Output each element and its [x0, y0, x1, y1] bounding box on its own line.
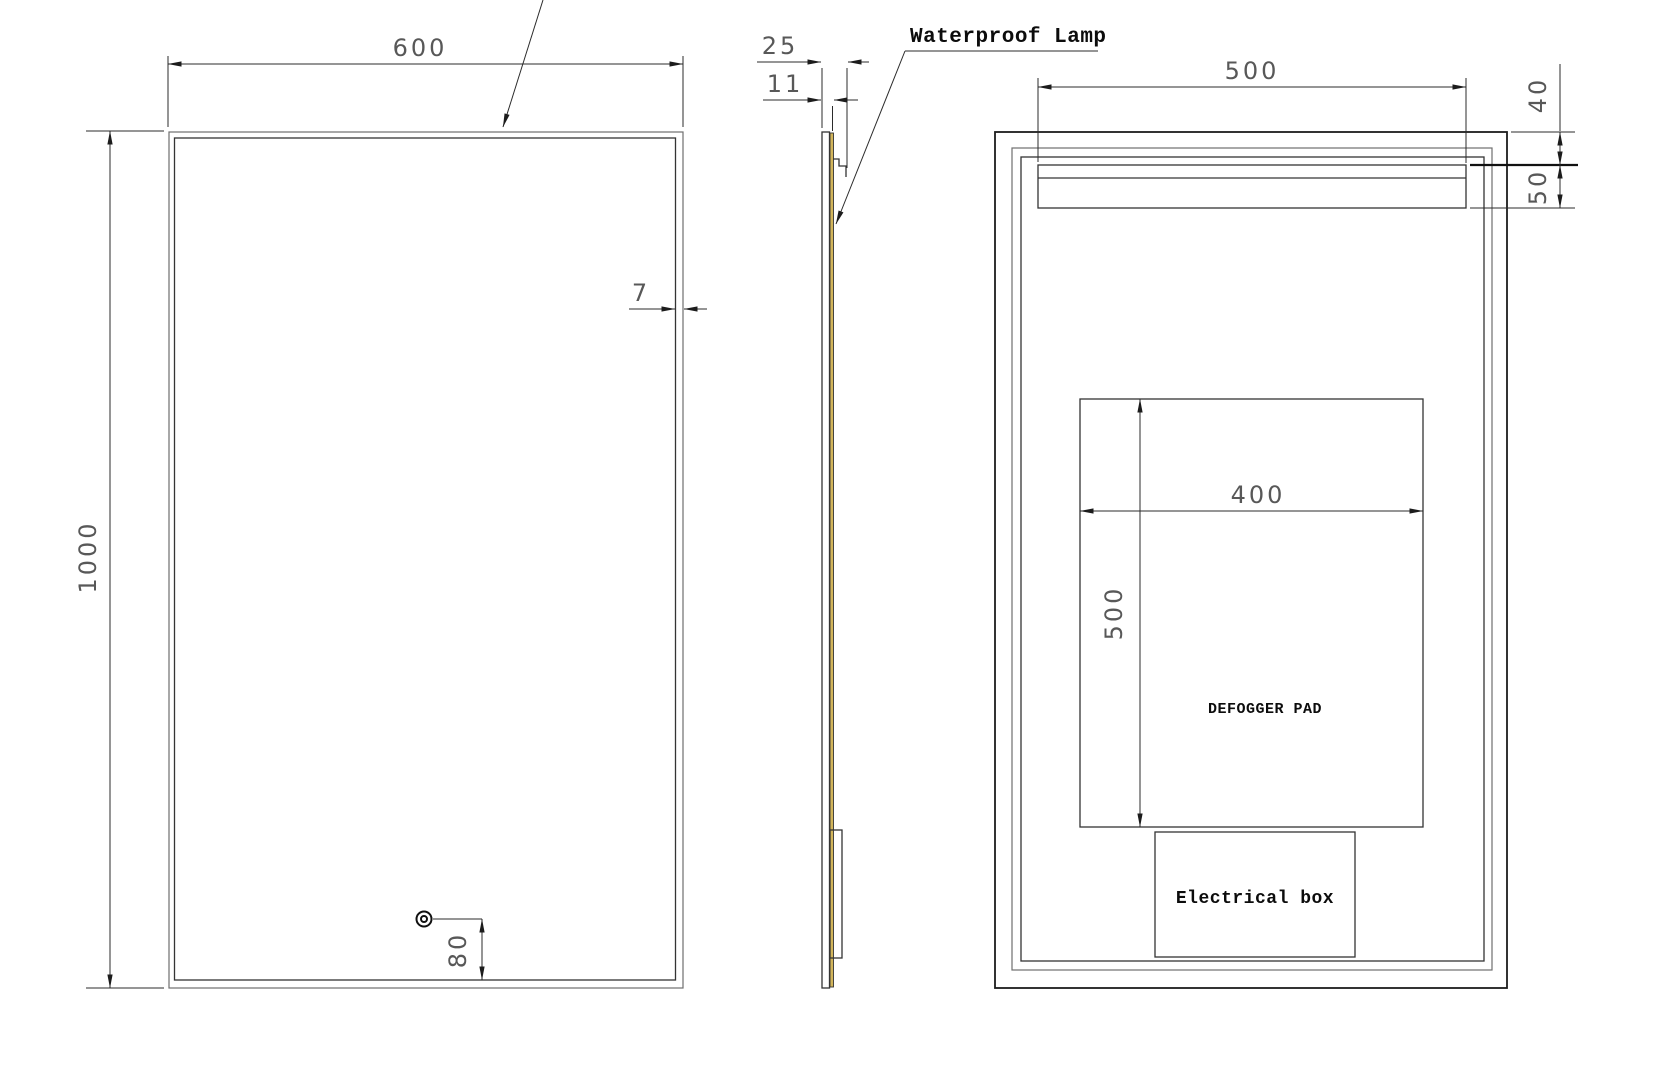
waterproof-lamp-label: Waterproof Lamp	[910, 26, 1107, 49]
front-view: 600 1000 7 80	[74, 0, 707, 988]
technical-drawing-canvas: 600 1000 7 80 25 11	[0, 0, 1664, 1080]
back-inner-frame	[1021, 157, 1484, 961]
back-view: 500 40 50 400 500 DEFOGGER PAD Electrica…	[995, 57, 1578, 988]
sensor-dim-text: 80	[444, 932, 472, 969]
defogger-width-dim-text: 400	[1231, 481, 1286, 509]
defogger-height-dim-text: 500	[1100, 586, 1128, 641]
defogger-pad	[1080, 399, 1423, 827]
lamp-width-dim-text: 500	[1225, 57, 1280, 85]
lamp-offset-dim-text: 40	[1524, 77, 1552, 114]
inset-dim-text: 7	[632, 279, 650, 307]
mirror-drawing-svg: 600 1000 7 80 25 11	[0, 0, 1664, 1080]
front-inner-frame	[175, 138, 676, 980]
touch-sensor-icon	[417, 912, 432, 927]
waterproof-lamp-leader	[836, 51, 905, 224]
height-dim-text: 1000	[74, 520, 102, 593]
depth-dim-text: 25	[762, 32, 799, 60]
lamp-height-dim-text: 50	[1524, 169, 1552, 206]
electrical-box-label: Electrical box	[1176, 889, 1334, 909]
back-outer-frame	[995, 132, 1507, 988]
width-dim-text: 600	[393, 34, 448, 62]
back-middle-frame	[1012, 148, 1492, 970]
front-outer-frame	[169, 132, 683, 988]
touch-sensor-icon-inner	[421, 916, 427, 922]
lamp-housing	[1038, 165, 1466, 208]
defogger-pad-label: DEFOGGER PAD	[1208, 701, 1322, 718]
side-hanging-bracket	[833, 159, 846, 177]
glass-dim-text: 11	[767, 70, 804, 98]
side-glass-profile	[822, 132, 830, 988]
side-view: 25 11 Waterproof Lamp	[757, 26, 1107, 988]
